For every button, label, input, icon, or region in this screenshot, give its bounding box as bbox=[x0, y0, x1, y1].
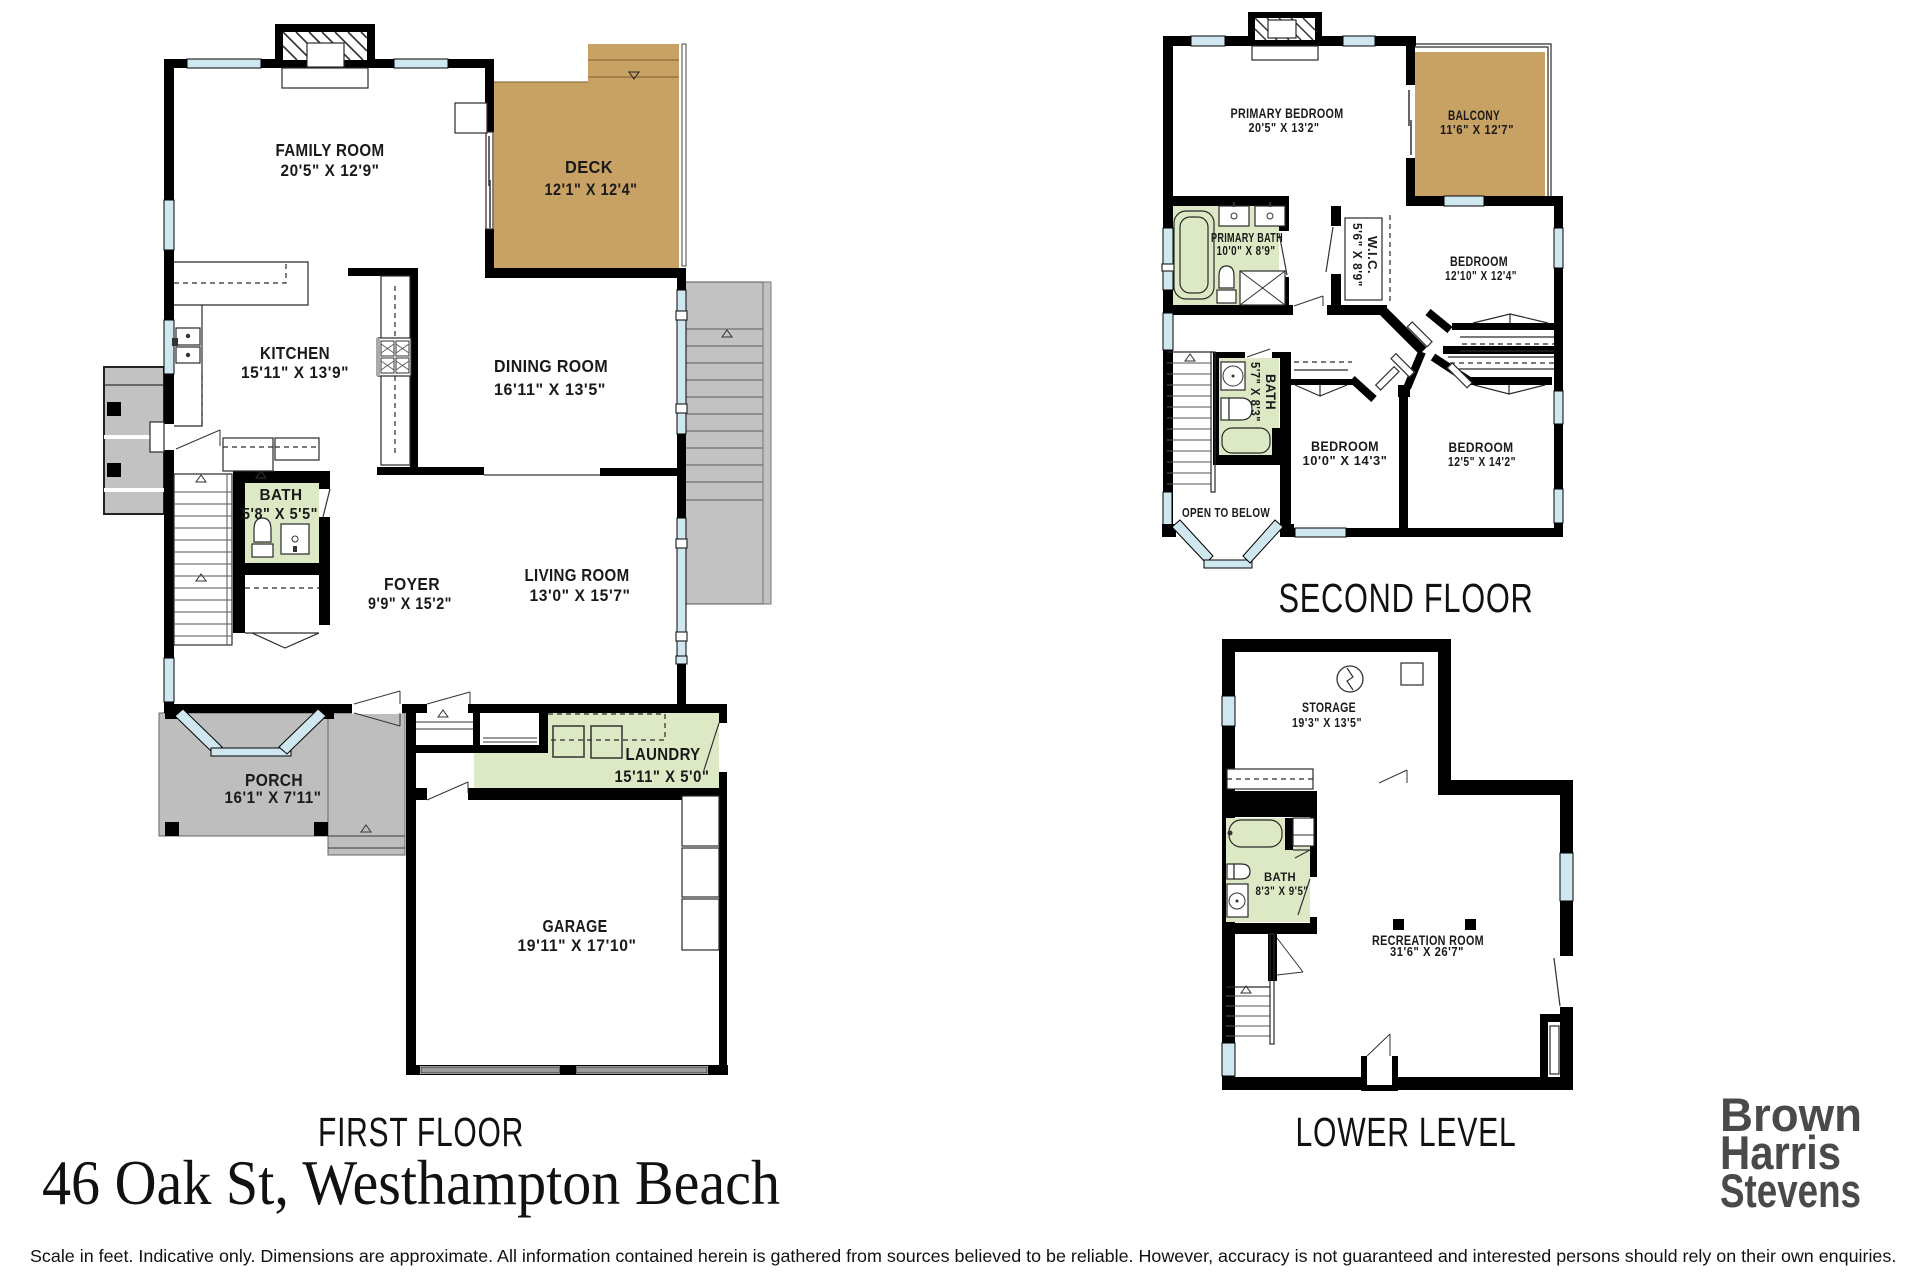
svg-text:FAMILY ROOM: FAMILY ROOM bbox=[276, 140, 385, 160]
svg-text:BEDROOM: BEDROOM bbox=[1449, 440, 1514, 455]
svg-text:PORCH: PORCH bbox=[245, 770, 303, 790]
svg-text:16'1" X 7'11": 16'1" X 7'11" bbox=[225, 789, 322, 807]
svg-text:BEDROOM: BEDROOM bbox=[1450, 254, 1508, 269]
svg-text:LOWER LEVEL: LOWER LEVEL bbox=[1296, 1109, 1517, 1155]
svg-text:STORAGE: STORAGE bbox=[1302, 700, 1356, 715]
svg-text:11'6" X 12'7": 11'6" X 12'7" bbox=[1440, 122, 1514, 137]
svg-text:DECK: DECK bbox=[565, 157, 613, 177]
svg-text:5'6" X 8'9": 5'6" X 8'9" bbox=[1350, 223, 1364, 287]
svg-text:5'8" X 5'5": 5'8" X 5'5" bbox=[242, 506, 318, 523]
svg-text:15'11" X 5'0": 15'11" X 5'0" bbox=[615, 768, 710, 786]
svg-text:12'1" X 12'4": 12'1" X 12'4" bbox=[545, 181, 638, 199]
svg-text:FOYER: FOYER bbox=[384, 574, 440, 594]
svg-text:31'6" X 26'7": 31'6" X 26'7" bbox=[1390, 944, 1464, 959]
svg-text:20'5" X 13'2": 20'5" X 13'2" bbox=[1249, 120, 1320, 135]
svg-text:8'3" X 9'5": 8'3" X 9'5" bbox=[1256, 884, 1309, 898]
svg-text:12'10" X 12'4": 12'10" X 12'4" bbox=[1445, 268, 1517, 283]
svg-text:5'7" X 8'3": 5'7" X 8'3" bbox=[1248, 362, 1262, 422]
svg-text:W.I.C.: W.I.C. bbox=[1365, 236, 1380, 274]
svg-text:BALCONY: BALCONY bbox=[1448, 108, 1500, 123]
svg-text:10'0" X 14'3": 10'0" X 14'3" bbox=[1303, 453, 1388, 468]
svg-text:DINING ROOM: DINING ROOM bbox=[494, 356, 608, 376]
svg-text:LAUNDRY: LAUNDRY bbox=[626, 744, 701, 764]
svg-text:10'0" X 8'9": 10'0" X 8'9" bbox=[1217, 244, 1276, 258]
svg-text:13'0" X 15'7": 13'0" X 15'7" bbox=[530, 587, 631, 605]
svg-text:BATH: BATH bbox=[1264, 870, 1296, 884]
svg-text:LIVING ROOM: LIVING ROOM bbox=[525, 565, 630, 585]
svg-text:Stevens: Stevens bbox=[1720, 1164, 1861, 1217]
svg-text:19'11" X 17'10": 19'11" X 17'10" bbox=[518, 937, 637, 955]
svg-text:BATH: BATH bbox=[1263, 374, 1278, 410]
svg-text:PRIMARY BEDROOM: PRIMARY BEDROOM bbox=[1231, 106, 1344, 121]
svg-text:12'5" X 14'2": 12'5" X 14'2" bbox=[1448, 454, 1516, 469]
svg-text:BATH: BATH bbox=[260, 487, 303, 504]
svg-text:OPEN TO BELOW: OPEN TO BELOW bbox=[1182, 506, 1270, 520]
svg-text:15'11" X 13'9": 15'11" X 13'9" bbox=[241, 364, 349, 382]
svg-text:46 Oak St, Westhampton Beach: 46 Oak St, Westhampton Beach bbox=[42, 1148, 780, 1218]
svg-text:KITCHEN: KITCHEN bbox=[260, 343, 330, 363]
svg-text:16'11" X 13'5": 16'11" X 13'5" bbox=[494, 381, 606, 399]
svg-text:9'9" X 15'2": 9'9" X 15'2" bbox=[368, 595, 452, 613]
svg-text:SECOND FLOOR: SECOND FLOOR bbox=[1279, 575, 1534, 621]
svg-text:BEDROOM: BEDROOM bbox=[1311, 439, 1379, 454]
svg-text:PRIMARY BATH: PRIMARY BATH bbox=[1211, 230, 1283, 245]
svg-text:20'5" X 12'9": 20'5" X 12'9" bbox=[281, 162, 380, 180]
svg-text:19'3" X 13'5": 19'3" X 13'5" bbox=[1292, 715, 1362, 730]
svg-text:Scale in feet. Indicative only: Scale in feet. Indicative only. Dimensio… bbox=[30, 1246, 1896, 1266]
svg-text:GARAGE: GARAGE bbox=[543, 916, 608, 936]
